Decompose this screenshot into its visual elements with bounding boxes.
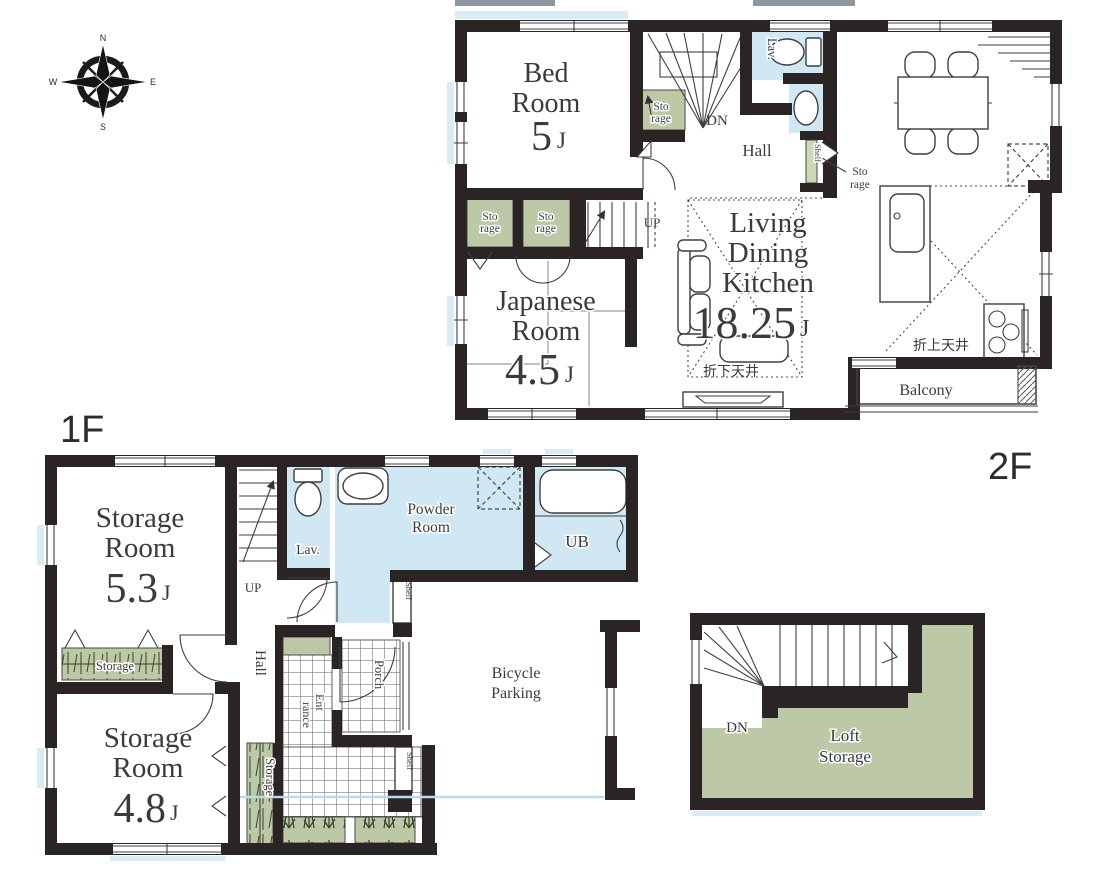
f2-storage-callout-2: rage bbox=[850, 179, 870, 191]
compass-n: N bbox=[100, 33, 107, 43]
kitchen-island-sink bbox=[880, 186, 930, 302]
floor-plan-page: N E S W bbox=[0, 0, 1100, 886]
stove-counter bbox=[984, 304, 1028, 358]
loft-storage-label-2: Storage bbox=[819, 747, 871, 766]
f1-hall-label: Hall bbox=[252, 650, 268, 676]
ldk-label-1: Living bbox=[729, 207, 806, 239]
powder-sink bbox=[338, 468, 388, 504]
raised-ceiling-label: 折上天井 bbox=[913, 338, 969, 354]
f2-storage-a-label-1: Sto bbox=[482, 211, 498, 223]
storage-room-48-size: 4.8 bbox=[114, 786, 167, 832]
truncated-top-bar-left bbox=[455, 0, 555, 6]
f1-lav-label: Lav. bbox=[296, 542, 320, 557]
f2-bedroom-size: 5 bbox=[531, 114, 552, 160]
f1-up-label: UP bbox=[245, 580, 262, 595]
shelf-lower-label: Shelf bbox=[405, 752, 415, 770]
f2-lav-label: Lav. bbox=[765, 38, 779, 60]
f2-up-label: UP bbox=[644, 215, 661, 230]
ub-label: UB bbox=[565, 532, 589, 551]
floor-2-plan: Bed Room 5 J Sto rage Lav. DN Hall Shelf… bbox=[454, 20, 1063, 420]
floor-1-plan: Storage Room 5.3 J Storage Room 4.8 J St… bbox=[44, 455, 640, 855]
loft-storage-label-1: Loft bbox=[830, 726, 860, 745]
loft-window bbox=[689, 640, 703, 684]
entrance-label-2: rance bbox=[300, 702, 314, 728]
compass-e: E bbox=[150, 77, 156, 87]
entrance-label-1: Ent bbox=[313, 694, 327, 711]
balcony-label: Balcony bbox=[899, 382, 952, 399]
f2-hall-label: Hall bbox=[742, 141, 772, 160]
bicycle-parking-label-1: Bicycle bbox=[492, 665, 541, 682]
ldk-label-2: Dining bbox=[728, 237, 809, 269]
tv-board bbox=[683, 392, 783, 407]
japanese-room-size: 4.5 bbox=[505, 345, 560, 394]
powder-room-lobe bbox=[335, 575, 390, 623]
ldk-label-3: Kitchen bbox=[722, 267, 814, 299]
f2-storage-b-label-1: Sto bbox=[538, 211, 554, 223]
loft-stair-area bbox=[702, 625, 908, 688]
storage-room-53-label-1: Storage bbox=[96, 502, 185, 534]
f2-shelf-label: Shelf bbox=[813, 144, 823, 162]
f2-wash-basin bbox=[794, 91, 818, 125]
f2-dn-label: DN bbox=[706, 113, 728, 129]
truncated-top-bar-right bbox=[753, 0, 855, 6]
floor-2-label: 2F bbox=[988, 446, 1032, 488]
storage-room-48-size-unit: J bbox=[170, 800, 179, 825]
storage-vertical-label: Storage bbox=[263, 758, 277, 797]
storage-room-48-label-2: Room bbox=[113, 752, 184, 784]
f2-storage-b-label-2: rage bbox=[536, 223, 556, 235]
lowered-ceiling-label: 折下天井 bbox=[703, 364, 759, 380]
f2-bedroom-label-1: Bed bbox=[523, 58, 568, 89]
f2-bedroom-size-unit: J bbox=[557, 128, 566, 153]
loft-plan: DN Loft Storage bbox=[689, 613, 985, 810]
floor-1-label: 1F bbox=[60, 409, 104, 451]
storage-room-53-size-unit: J bbox=[162, 580, 171, 605]
compass-rose: N E S W bbox=[49, 33, 156, 132]
f2-storage-callout-1: Sto bbox=[852, 166, 868, 178]
japanese-room-label-2: Room bbox=[512, 316, 581, 347]
storage-room-53-label-2: Room bbox=[105, 532, 176, 564]
compass-s: S bbox=[100, 122, 106, 132]
japanese-room-size-unit: J bbox=[565, 362, 574, 387]
f2-stair-storage-label-1: Sto bbox=[653, 101, 669, 113]
ldk-size: 18.25 bbox=[693, 297, 797, 348]
f1-toilet bbox=[294, 469, 322, 516]
floor-plan-drawing: N E S W bbox=[0, 0, 1100, 886]
porch-label: Porch bbox=[372, 660, 386, 690]
shelf-upper-label: Shelf bbox=[404, 582, 414, 600]
powder-room-label-2: Room bbox=[412, 519, 450, 536]
japanese-room-label-1: Japanese bbox=[496, 286, 596, 317]
storage-room-48-label-1: Storage bbox=[104, 722, 193, 754]
storage-strip-label: Storage bbox=[96, 659, 135, 673]
bicycle-parking-label-2: Parking bbox=[491, 685, 541, 702]
powder-room-label-1: Powder bbox=[407, 501, 455, 518]
f2-stair-storage-label-2: rage bbox=[651, 113, 671, 125]
compass-w: W bbox=[49, 77, 58, 87]
storage-room-53-size: 5.3 bbox=[106, 566, 159, 612]
ldk-size-unit: J bbox=[800, 316, 809, 342]
loft-dn-label: DN bbox=[726, 720, 748, 736]
f2-storage-a-label-2: rage bbox=[480, 223, 500, 235]
